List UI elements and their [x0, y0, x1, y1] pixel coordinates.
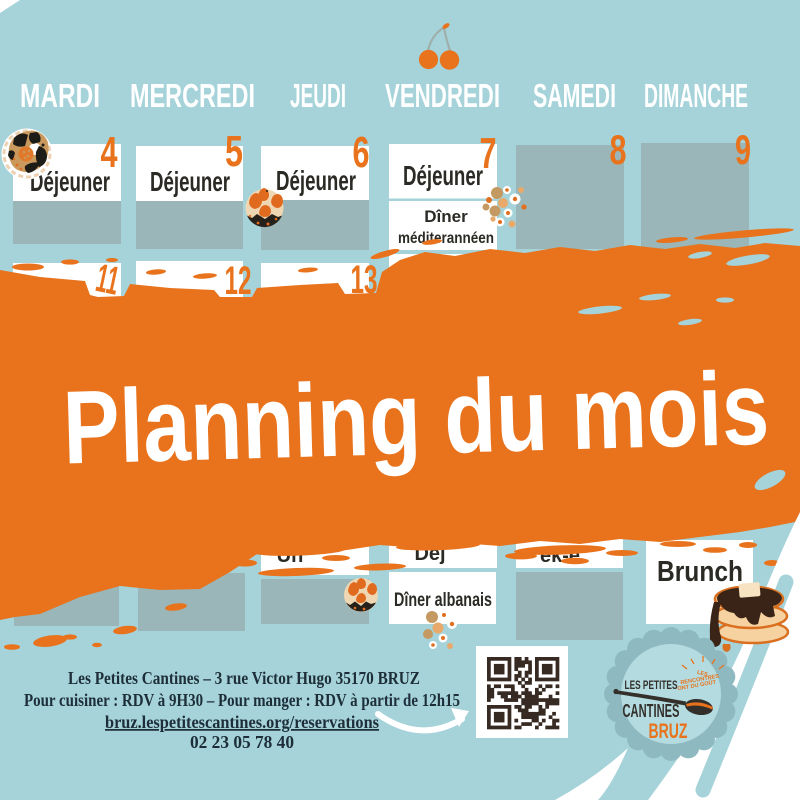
- svg-text:bruz.lespetitescantines.org/re: bruz.lespetitescantines.org/reservations: [105, 712, 379, 732]
- svg-text:Déjeuner: Déjeuner: [150, 166, 230, 197]
- svg-text:Déjeuner: Déjeuner: [403, 160, 483, 191]
- svg-text:SAMEDI: SAMEDI: [533, 77, 616, 114]
- svg-text:JEUDI: JEUDI: [290, 77, 346, 114]
- svg-text:LES PETITES: LES PETITES: [625, 678, 678, 692]
- svg-text:MERCREDI: MERCREDI: [130, 77, 255, 114]
- svg-text:BRUZ: BRUZ: [649, 720, 688, 743]
- svg-text:méditerannéen: méditerannéen: [398, 230, 494, 247]
- svg-text:Dîner albanais: Dîner albanais: [394, 590, 492, 611]
- svg-text:DIMANCHE: DIMANCHE: [644, 77, 748, 114]
- svg-text:Déjeuner: Déjeuner: [276, 165, 356, 196]
- svg-text:Pour cuisiner : RDV à 9H30 – P: Pour cuisiner : RDV à 9H30 – Pour manger…: [24, 690, 460, 710]
- svg-text:6: 6: [353, 128, 370, 177]
- svg-text:Planning du mois: Planning du mois: [61, 351, 770, 487]
- svg-text:9: 9: [735, 126, 751, 173]
- svg-text:Les Petites Cantines – 3 rue V: Les Petites Cantines – 3 rue Victor Hugo…: [68, 668, 420, 688]
- svg-text:5: 5: [225, 127, 243, 176]
- svg-text:12: 12: [225, 259, 252, 303]
- svg-text:Brunch: Brunch: [657, 556, 743, 588]
- svg-text:CANTINES: CANTINES: [623, 701, 680, 721]
- svg-text:VENDREDI: VENDREDI: [385, 77, 500, 114]
- svg-text:4: 4: [101, 128, 118, 177]
- svg-text:7: 7: [480, 129, 497, 178]
- svg-text:02 23 05 78 40: 02 23 05 78 40: [190, 732, 294, 752]
- svg-text:Dîner: Dîner: [424, 207, 468, 226]
- svg-text:8: 8: [610, 126, 627, 173]
- svg-text:MARDI: MARDI: [20, 77, 100, 114]
